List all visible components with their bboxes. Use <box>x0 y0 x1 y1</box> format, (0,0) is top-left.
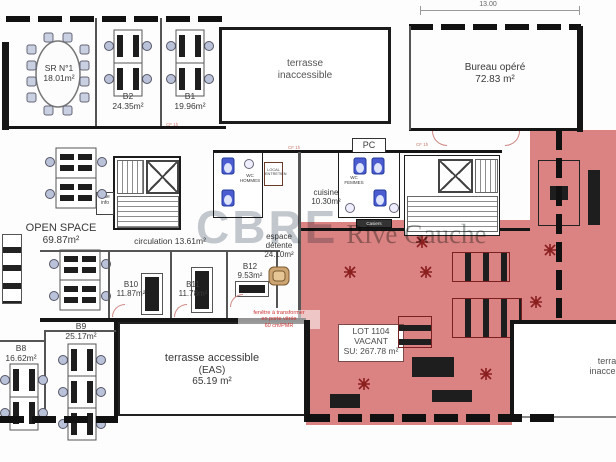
room-label-terrace-top: terrasse inaccessible <box>222 58 388 81</box>
facade-bottom-right <box>306 414 558 422</box>
room-label-pc: PC <box>353 140 385 150</box>
wc-fixture-3 <box>353 157 367 175</box>
desk-pod-b8 <box>2 362 42 420</box>
dimension-tick-left <box>420 6 421 15</box>
sink-1 <box>244 159 254 169</box>
local-entretien-line1: LOCAL <box>265 168 282 172</box>
b12-name: B12 <box>228 262 272 271</box>
core-right <box>404 155 500 236</box>
wall-b10-b11 <box>170 252 172 318</box>
chair-vacant-1 <box>344 266 356 278</box>
bureau-name: Bureau opéré <box>420 62 570 74</box>
wall-b9-top <box>46 330 116 332</box>
facade-top-left <box>6 16 226 22</box>
desks-b2 <box>106 28 150 98</box>
room-label-terrace-accessible: terrasse accessible (EAS) 65.19 m² <box>120 352 304 388</box>
wall-b2-b1 <box>160 18 162 126</box>
room-label-local-entretien: LOCAL ENTRETIEN <box>265 168 282 177</box>
lot-name: LOT 1104 <box>339 327 403 337</box>
desk-b10 <box>142 274 162 314</box>
table-vacant-2 <box>330 394 360 408</box>
terrace-br-line2: inaccessible <box>554 366 616 376</box>
facade-bottom-left <box>0 416 118 423</box>
room-local-entretien: LOCAL ENTRETIEN <box>264 162 283 186</box>
lot-status: VACANT <box>339 337 403 347</box>
sink-2 <box>345 203 355 213</box>
desk-b11 <box>192 268 212 312</box>
sink-3 <box>389 203 399 213</box>
stairs-right-upper <box>475 159 498 193</box>
open-space-area: 69.87m² <box>16 235 106 247</box>
casiers-label: Casiers <box>357 221 391 226</box>
stairs-left-lower <box>117 196 179 228</box>
wall-left-exterior <box>2 42 9 130</box>
local-entretien-line2: ENTRETIEN <box>265 172 282 176</box>
b1-area: 19.96m² <box>160 102 220 112</box>
terrace-top-line2: inaccessible <box>222 70 388 82</box>
core-left <box>113 156 181 230</box>
b9-area: 25.17m² <box>58 332 104 342</box>
dimension-tick-right <box>579 6 580 15</box>
wc-hommes-line2: HOMMES <box>238 178 262 183</box>
door-rating-label-3: CF 1h <box>416 142 428 147</box>
room-wc-femmes: WC FEMMES <box>338 152 400 218</box>
wall-lot-left <box>304 320 310 422</box>
wall-sr1-b2 <box>95 18 97 126</box>
vacant-zone-left-band <box>300 222 370 330</box>
door-arc-b11 <box>174 304 187 317</box>
wc-femmes-line1: WC <box>341 175 367 180</box>
casiers-unit: Casiers <box>356 219 392 228</box>
wall-topleft-bottom <box>6 126 226 129</box>
desk-vacant-1 <box>398 316 432 348</box>
lot-label-box: LOT 1104 VACANT SU: 267.78 m² <box>338 324 404 362</box>
door-arc-b10 <box>112 304 125 317</box>
bureau-area: 72.83 m² <box>420 74 570 86</box>
armchair <box>268 266 290 286</box>
wc-hommes-line1: WC <box>238 173 262 178</box>
conference-table <box>26 32 90 118</box>
wc-femmes-line2: FEMMES <box>341 180 367 185</box>
terrace-acc-sub: (EAS) <box>120 365 304 377</box>
room-label-lot: LOT 1104 VACANT SU: 267.78 m² <box>339 327 403 356</box>
elevator-right <box>438 159 473 193</box>
terrace-top-line1: terrasse <box>222 58 388 70</box>
floor-plan-canvas: SR N°1 18.01m² B2 24.35m² B1 19.96m² CF … <box>0 0 616 462</box>
lot-area: SU: 267.78 m² <box>339 347 403 357</box>
desk-pod-b9 <box>60 342 104 442</box>
door-rating-label-1: CF 1h <box>166 122 178 127</box>
terrace-br-line1: terrasse <box>554 356 616 366</box>
room-terrace-accessible: terrasse accessible (EAS) 65.19 m² <box>118 322 306 416</box>
room-label-b8: B8 16.62m² <box>0 344 42 364</box>
room-terrace-bottom-right: terrasse inaccessible <box>510 320 616 418</box>
room-terrace-top: terrasse inaccessible <box>219 27 391 124</box>
facade-right <box>556 130 562 322</box>
chair-vacant-4 <box>480 368 492 380</box>
door-arc-b12 <box>230 294 243 307</box>
desk-pod-openspace-2 <box>48 248 112 312</box>
open-space-name: OPEN SPACE <box>16 222 106 235</box>
room-label-bureau-opere: Bureau opéré 72.83 m² <box>420 62 570 85</box>
table-vacant-3 <box>432 390 472 402</box>
door-arc-bureau-2 <box>505 131 520 146</box>
elevator-left <box>146 160 179 194</box>
room-label-open-space: OPEN SPACE 69.87m² <box>16 222 106 246</box>
desk-bench-left-wall <box>2 234 22 304</box>
room-label-circulation: circulation 13.61m² <box>110 237 230 247</box>
wall-bureau-right <box>577 26 583 132</box>
terrace-acc-area: 65.19 m² <box>120 376 304 388</box>
door-rating-label-2: CF 1h <box>288 145 300 150</box>
stairs-right-lower <box>407 196 498 232</box>
dimension-line <box>420 10 580 11</box>
room-label-wc-hommes: WC HOMMES <box>238 173 262 183</box>
chair-vacant-6 <box>530 296 542 308</box>
table-vacant-1 <box>412 357 454 377</box>
chair-vacant-2 <box>420 266 432 278</box>
dimension-value: 13.00 <box>468 1 508 9</box>
b2-area: 24.35m² <box>98 102 158 112</box>
wall-cuisine-left <box>298 152 301 330</box>
facade-bureau-top <box>409 24 581 30</box>
b12-area: 9.53m² <box>228 271 272 280</box>
room-label-wc-femmes: WC FEMMES <box>341 175 367 185</box>
desks-b1 <box>168 28 212 98</box>
chair-vacant-5 <box>544 244 556 256</box>
room-label-b12: B12 9.53m² <box>228 262 272 280</box>
wall-b10-left <box>108 252 110 318</box>
wall-b11-b12 <box>226 252 228 318</box>
wall-b8-top <box>0 340 46 342</box>
stairs-left-upper <box>117 160 144 194</box>
chair-vacant-3 <box>358 378 370 390</box>
terrace-acc-name: terrasse accessible <box>120 352 304 365</box>
wc-fixture-4 <box>371 157 385 175</box>
door-arc-bureau-1 <box>432 131 447 146</box>
wc-fixture-2 <box>221 189 235 207</box>
wall-bureau-left <box>409 26 411 130</box>
credenza-vacant <box>588 170 600 225</box>
desk-vacant-3 <box>452 252 510 282</box>
chair-vacant-7 <box>416 236 428 248</box>
wall-brow-top <box>40 250 280 252</box>
room-label-terrace-bottom-right: terrasse inaccessible <box>554 356 616 377</box>
room-wc-hommes: WC HOMMES <box>213 152 263 218</box>
room-pc: PC <box>352 138 386 153</box>
wc-fixture-5 <box>373 189 387 207</box>
wc-fixture-1 <box>221 157 235 175</box>
b8-name: B8 <box>0 344 42 354</box>
desk-pod-openspace-1 <box>44 146 108 210</box>
